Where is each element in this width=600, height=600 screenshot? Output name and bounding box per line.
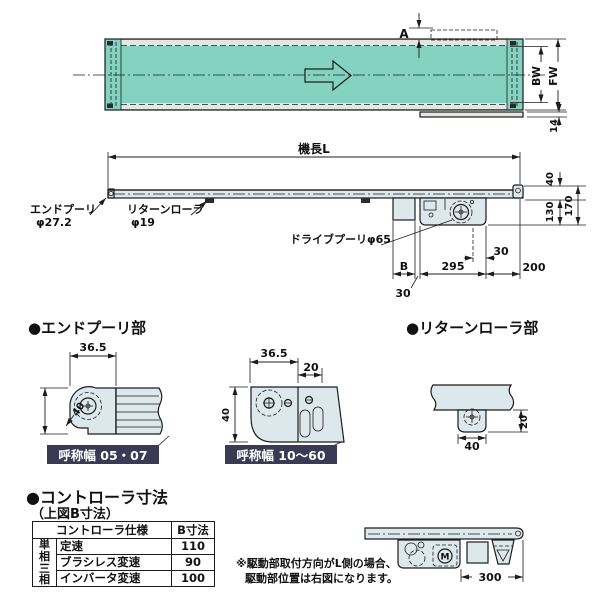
- phase-label-2: 三相: [39, 562, 50, 587]
- right-end-cap: [513, 185, 523, 198]
- controller-box-side: [393, 198, 415, 220]
- dim-machine-length: 機長L: [108, 141, 520, 188]
- component-labels: エンドプーリ φ27.2 リターンローラ φ19 ドライブプーリφ65: [30, 198, 452, 246]
- controller-dimension-table: コントローラ仕様 B寸法 単相 三相 定速 110 ブラシレス変速 90 インバ…: [32, 521, 215, 587]
- drive-unit-side: [420, 198, 486, 225]
- table-row: 単相 三相 定速 110: [33, 539, 215, 555]
- end-pulley-section-heading: ●エンドプーリ部: [28, 317, 146, 338]
- controller-section-subheading: （上図B寸法）: [31, 503, 119, 522]
- frame-rail-bottom: [121, 103, 507, 109]
- return-roller-dia: φ19: [131, 216, 155, 229]
- tension-unit-alt: [492, 540, 514, 564]
- conveyor-bar-alt: [365, 528, 523, 539]
- side-view: 機長L エンドプーリ φ27.2: [30, 141, 586, 300]
- dim-fw-label: FW: [547, 66, 560, 86]
- dim-200-label: 200: [523, 261, 546, 274]
- end-pulley-detail-narrow: 36.5 40: [40, 341, 169, 446]
- dim-170-label: 170: [564, 196, 575, 217]
- dim-40-wide-label: 40: [221, 408, 232, 422]
- phase-cell: 単相 三相: [33, 539, 57, 587]
- spec-cell: 定速: [57, 539, 172, 555]
- width-plate-wide: 呼称幅 10～60: [225, 445, 337, 464]
- return-roller-bracket-2: [361, 198, 370, 203]
- return-roller-detail: 40 20: [431, 385, 530, 453]
- dim-36-5-label: 36.5: [79, 341, 106, 354]
- dim-130-label: 130: [545, 202, 556, 223]
- spec-cell: インバータ変速: [57, 571, 172, 587]
- dim-295-label: 295: [442, 260, 465, 273]
- phase-label-1: 単相: [39, 538, 50, 563]
- top-plan-view: A BW FW 14: [73, 13, 567, 133]
- conveyor-spec-drawing: A BW FW 14: [0, 0, 600, 600]
- table-row: ブラシレス変速 90: [33, 555, 215, 571]
- dim-40-label: 40: [545, 172, 556, 186]
- return-roller-section-heading: ●リターンローラ部: [406, 317, 538, 338]
- end-pulley-name: エンドプーリ: [30, 202, 96, 216]
- table-header-row: コントローラ仕様 B寸法: [33, 522, 215, 539]
- dim-14: 14: [527, 103, 567, 133]
- b-value-cell: 110: [172, 539, 215, 555]
- drive-note-line-2: 駆動部位置は右図になります。: [245, 570, 398, 586]
- dim-bw-label: BW: [530, 66, 543, 86]
- mounting-rail-plan: [420, 112, 523, 117]
- motor-label: M: [441, 553, 450, 563]
- dim-40-roller-label: 40: [464, 440, 480, 453]
- dim-20-wide-label: 20: [303, 361, 319, 374]
- width-plate-narrow: 呼称幅 05・07: [47, 445, 159, 464]
- col-header-spec: コントローラ仕様: [33, 522, 172, 539]
- drive-unit-alt: M: [398, 540, 460, 568]
- dim-20-roller-label: 20: [519, 415, 530, 429]
- dim-300-label: 300: [479, 571, 502, 584]
- drive-pulley-label: ドライブプーリφ65: [290, 232, 391, 246]
- dim-30-offset-label: 30: [493, 245, 509, 258]
- rail-section: [431, 385, 514, 410]
- drive-note-line-1: ※駆動部取付方向がL側の場合、: [236, 555, 397, 571]
- dim-b-label: B: [400, 260, 408, 273]
- spec-cell: ブラシレス変速: [57, 555, 172, 571]
- col-header-b: B寸法: [172, 522, 215, 539]
- end-pulley-dia: φ27.2: [36, 216, 72, 229]
- conveyor-frame-plan: [105, 39, 523, 110]
- return-roller-bracket-1: [205, 198, 214, 203]
- b-value-cell: 90: [172, 555, 215, 571]
- dim-36-5-wide-label: 36.5: [260, 347, 287, 360]
- machine-length-label: 機長L: [298, 141, 330, 156]
- b-value-cell: 100: [172, 571, 215, 587]
- dim-14-label: 14: [549, 119, 560, 133]
- dim-30-gap-label: 30: [395, 287, 411, 300]
- table-row: インバータ変速 100: [33, 571, 215, 587]
- dim-a-label: A: [399, 27, 409, 41]
- controller-box-alt: [467, 542, 488, 563]
- end-pulley-detail-wide: 36.5 20 40: [221, 347, 344, 446]
